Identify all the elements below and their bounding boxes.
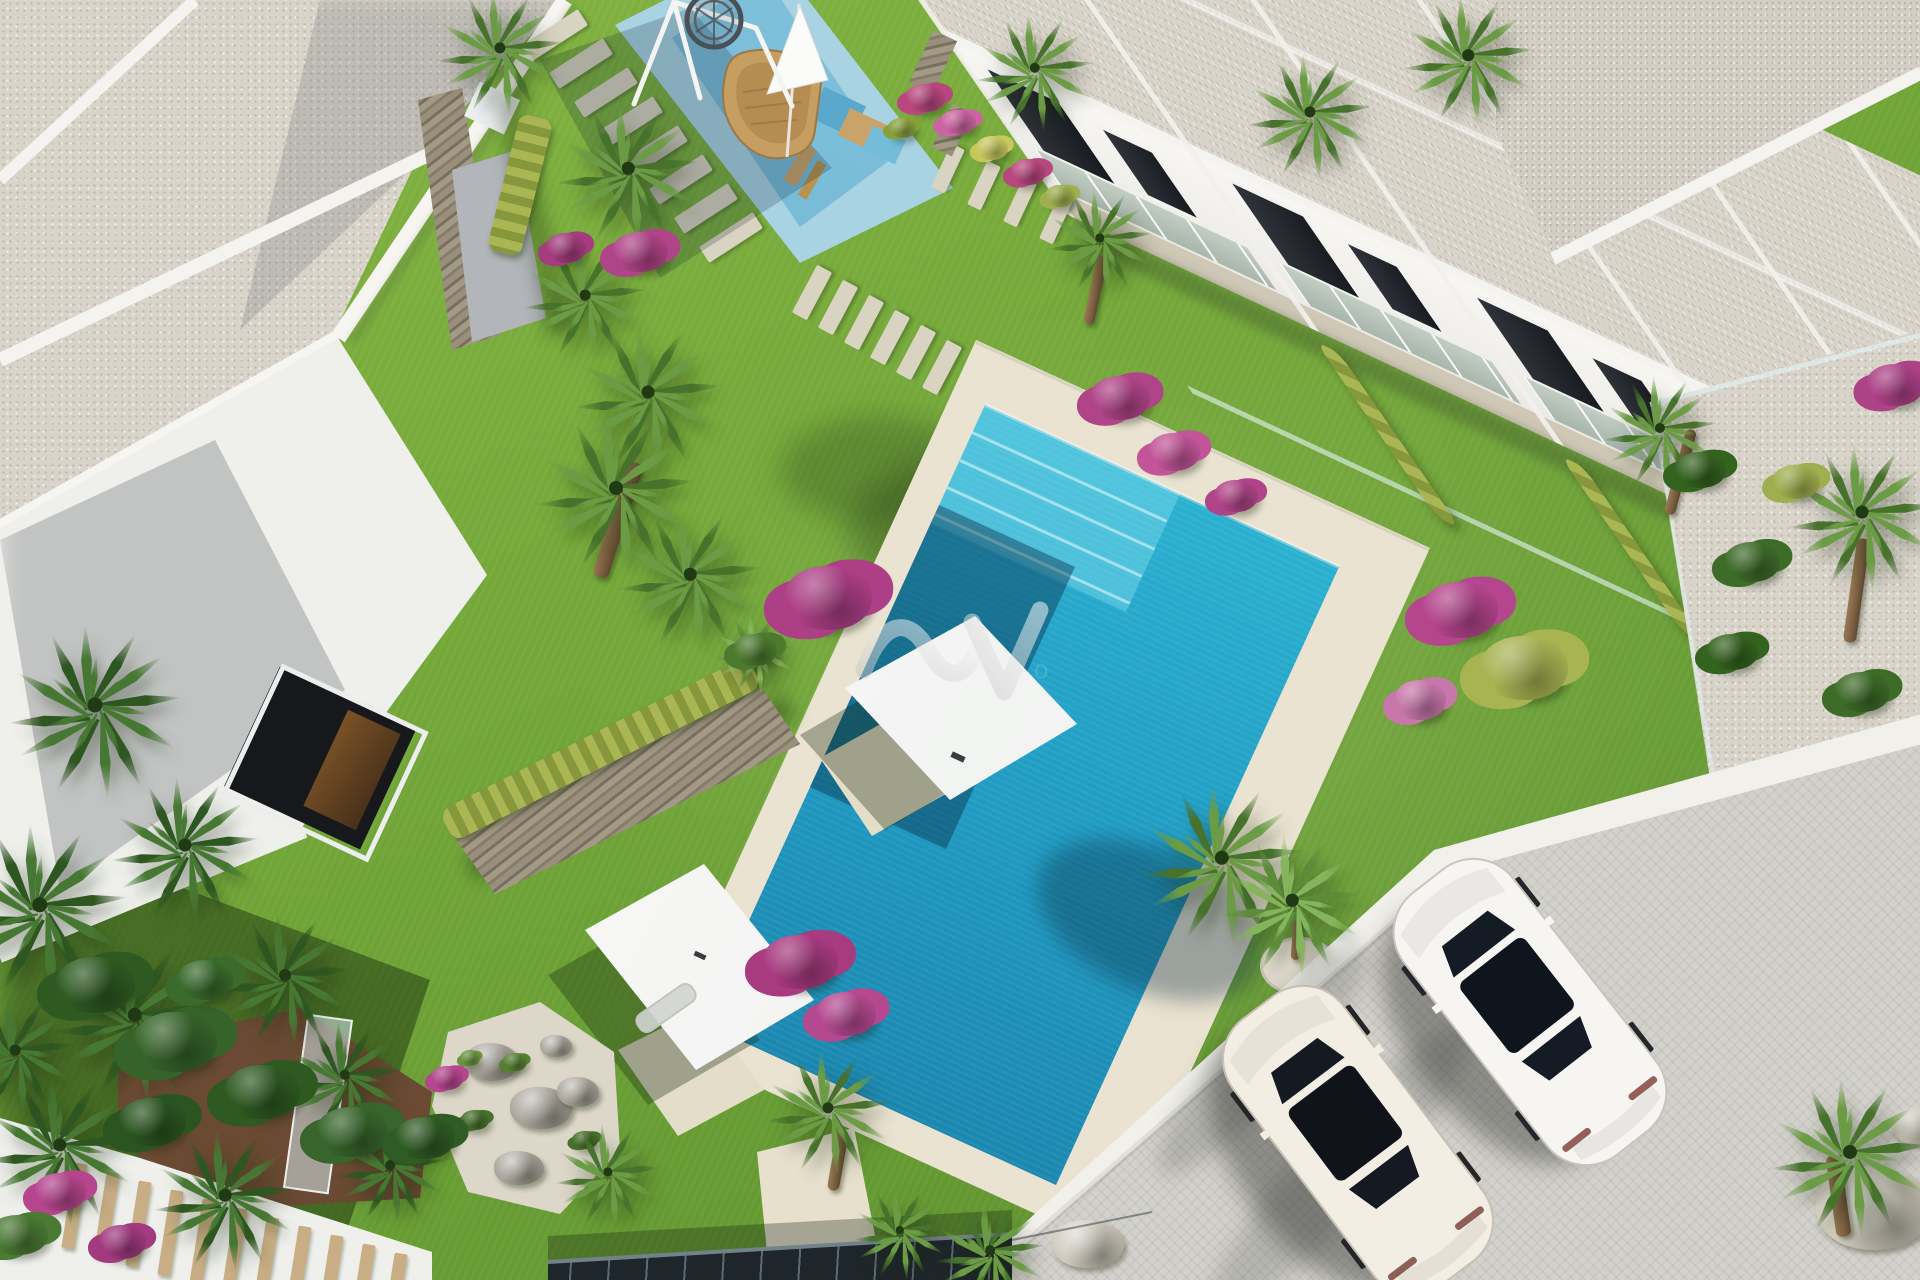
palm-frond [345, 1082, 358, 1141]
palm-frond [263, 981, 290, 1020]
palm-frond [1307, 71, 1363, 115]
palm-frond [1816, 516, 1861, 534]
palm-frond [18, 1117, 58, 1152]
palm-frond [610, 1169, 643, 1181]
palm-frond [311, 1024, 344, 1080]
palm-frond [1461, 16, 1472, 56]
palm-frond [1471, 53, 1532, 93]
palm-frond [40, 916, 60, 1003]
palm-frond [220, 944, 282, 987]
palm-tree-19 [854, 1184, 946, 1276]
stone-wall-piece-2 [932, 104, 972, 157]
palm-frond [356, 1169, 390, 1184]
palm-frond [933, 1254, 987, 1265]
palm-frond [1273, 57, 1308, 117]
bush-25 [98, 1225, 146, 1259]
palm-frond [795, 1116, 835, 1175]
palm-frond [1862, 521, 1879, 594]
palm-crown-center [219, 1189, 232, 1202]
palm-frond [588, 293, 645, 330]
parapet-band-2 [0, 149, 431, 367]
palm-frond [1653, 394, 1664, 429]
palm-crown-center [179, 839, 192, 852]
palm-frond [45, 631, 93, 713]
bush-17 [1045, 185, 1075, 207]
unit-2-window-small [1592, 358, 1686, 446]
pool-step-line-2 [959, 459, 1155, 551]
palm-frond [286, 978, 309, 1018]
palm-frond [769, 1115, 829, 1151]
palm-frond [618, 493, 665, 568]
palm-frond [1225, 855, 1275, 871]
stepping-path-to-pool-slab-1 [818, 279, 858, 335]
roof-divider-5 [1845, 140, 1920, 788]
bush-12 [905, 84, 945, 112]
palm-trunk-4 [1842, 537, 1869, 643]
bush-24 [34, 1173, 86, 1211]
palm-frond [608, 418, 660, 491]
palm-tree-13 [155, 1125, 295, 1265]
rock-bottom-right-2 [1892, 1107, 1920, 1145]
palm-frond [1470, 59, 1508, 121]
palm-frond [613, 437, 684, 492]
palm-frond [0, 829, 38, 913]
boulder-5 [540, 1035, 572, 1057]
palm-frond [158, 1202, 226, 1243]
palm-frond [1097, 214, 1126, 240]
palm-frond [553, 303, 591, 360]
palm-frond [138, 1012, 188, 1028]
bush-4 [546, 233, 586, 263]
palm-frond [539, 452, 612, 503]
palm-frond [900, 1236, 911, 1280]
palm-frond [1311, 115, 1333, 153]
palm-frond [63, 1132, 138, 1150]
palm-frond [793, 1085, 827, 1115]
palm-frond [42, 910, 93, 993]
bush-8 [1422, 582, 1498, 638]
palm-frond [60, 1155, 77, 1230]
palm-frond [1037, 65, 1074, 78]
palm-frond [1275, 89, 1309, 119]
palm-frond [135, 1025, 153, 1106]
palm-frond [44, 890, 131, 911]
palm-frond [551, 273, 584, 303]
palm-frond [789, 1112, 828, 1129]
palm-frond [183, 813, 222, 847]
palm-frond [987, 1226, 1017, 1253]
palm-frond [1101, 240, 1121, 272]
palm-tree-6 [715, 610, 795, 690]
palm-frond [586, 298, 608, 335]
palm-frond [282, 946, 318, 977]
palm-frond [630, 172, 672, 239]
palm-crown-center [1655, 423, 1665, 433]
palm-frond [347, 1079, 382, 1135]
palm-frond [998, 72, 1035, 88]
palm-frond [582, 268, 615, 297]
palm-frond [114, 811, 182, 858]
palm-frond [1660, 435, 1673, 491]
palm-frond [589, 141, 626, 175]
palm-trunk-1 [592, 460, 644, 579]
palm-frond [613, 453, 655, 490]
palm-frond [1171, 863, 1221, 883]
row-parapet [940, 27, 1920, 760]
palm-frond [1847, 1101, 1918, 1156]
palm-frond [108, 1022, 140, 1069]
palm-frond [620, 475, 699, 494]
palm-frond [188, 833, 261, 851]
palm-frond [1800, 1157, 1849, 1177]
pergola-slats-slab-10 [381, 1253, 407, 1280]
palm-tree-18 [556, 1120, 660, 1224]
palm-frond [0, 1055, 20, 1091]
palm-frond [223, 1164, 261, 1197]
palm-frond [901, 1232, 919, 1261]
palm-frond [598, 1121, 608, 1173]
palm-frond [821, 1070, 832, 1109]
palm-frond [186, 848, 211, 892]
palm-tree-26 [1604, 372, 1716, 484]
unit-1-window-main [1232, 184, 1359, 298]
palm-frond [561, 175, 629, 216]
watermark-partial-text: o [1034, 654, 1048, 685]
unit-0-window-small [1103, 130, 1197, 218]
bush-23 [395, 1117, 455, 1159]
boulder-2 [510, 1087, 572, 1129]
palm-frond [1601, 433, 1657, 445]
palm-frond [547, 299, 585, 315]
glass-fence-right-side [1650, 402, 1718, 793]
palm-frond [0, 872, 38, 913]
palm-frond [186, 1168, 223, 1202]
palm-frond [339, 1171, 391, 1202]
palm-frond [825, 1080, 859, 1110]
palm-frond [625, 122, 689, 171]
palm-frond [17, 1054, 53, 1112]
palm-frond [1004, 76, 1041, 131]
palm-frond [1244, 117, 1306, 130]
palm-frond [651, 547, 688, 581]
palm-trunk-6 [1290, 920, 1302, 961]
palm-frond [587, 299, 623, 357]
palm-frond [676, 505, 690, 575]
palm-tree-20 [1142, 778, 1302, 938]
palm-trunk-7 [827, 1128, 850, 1191]
stepping-path-flowerbeds-slab-3 [1039, 194, 1073, 244]
palm-frond [61, 1148, 87, 1193]
play-unit-blue-2 [862, 126, 906, 165]
palm-frond [222, 982, 286, 1020]
palm-frond [342, 1049, 374, 1077]
palm-frond [1855, 468, 1867, 513]
palm-frond [211, 1126, 225, 1196]
palm-frond [1824, 521, 1870, 589]
palm-frond [1628, 407, 1659, 435]
palm-crown-center [53, 1138, 66, 1151]
palm-frond [390, 1172, 402, 1226]
palm-frond [1033, 30, 1086, 71]
palm-frond [228, 1183, 299, 1200]
palm-frond [648, 401, 665, 474]
palm-frond [109, 851, 182, 866]
palm-frond [1294, 904, 1336, 971]
palm-frond [1206, 780, 1222, 860]
palm-frond [575, 1176, 608, 1191]
pergola-slats-slab-8 [317, 1235, 343, 1280]
palm-frond [578, 259, 589, 297]
palm-frond [88, 945, 133, 1023]
palm-frond [1471, 44, 1536, 60]
wall-base-band [0, 828, 307, 962]
palm-frond [978, 41, 1032, 79]
palm-frond [757, 649, 795, 675]
palm-frond [285, 983, 300, 1050]
bush-10 [1394, 680, 1446, 720]
rock-bottom-right [1816, 1166, 1920, 1250]
palm-frond [312, 1054, 344, 1083]
palm-frond [8, 1014, 19, 1052]
palm-frond [752, 631, 776, 652]
palm-frond [185, 854, 202, 927]
palm-frond [181, 1199, 225, 1217]
palm-frond [15, 714, 96, 763]
palm-frond [988, 1214, 1037, 1252]
palm-frond [610, 401, 656, 469]
palm-frond [0, 912, 36, 930]
palm-frond [502, 52, 539, 112]
palm-frond [666, 580, 694, 621]
palm-frond [1469, 58, 1492, 97]
palm-crown-center [87, 697, 102, 712]
palm-frond [572, 458, 614, 495]
palm-frond [144, 818, 182, 853]
bush-31 [1772, 465, 1820, 499]
palm-frond [1146, 867, 1224, 914]
palm-frond [1035, 75, 1048, 134]
palm-frond [991, 1252, 1011, 1280]
palm-frond [98, 702, 151, 719]
palm-frond [308, 1079, 345, 1095]
palm-frond [762, 1113, 824, 1126]
palm-frond [86, 629, 142, 707]
palm-frond [1407, 62, 1469, 99]
palm-frond [12, 1010, 67, 1052]
palm-frond [750, 614, 777, 652]
palm-crown-center [1215, 851, 1229, 865]
palm-frond [1850, 1162, 1868, 1241]
palm-frond [521, 300, 581, 313]
palm-frond [393, 1163, 444, 1197]
palm-frond [590, 494, 621, 539]
unit-3-balcony-glass [1767, 490, 1920, 632]
palm-frond [693, 562, 764, 579]
palm-frond [1285, 857, 1297, 901]
palm-frond [56, 978, 131, 1030]
palm-frond [91, 650, 168, 709]
palm-frond [742, 655, 761, 680]
palm-frond [1658, 391, 1709, 430]
palm-frond [734, 656, 760, 694]
palm-frond [1090, 187, 1100, 239]
palm-frond [898, 1200, 940, 1232]
palm-frond [1809, 1162, 1859, 1236]
palm-frond [36, 848, 114, 909]
unit-3-window-main [1722, 412, 1849, 526]
palm-frond [156, 1162, 222, 1208]
palm-frond [1050, 244, 1100, 274]
roof-divider-4 [1600, 26, 1920, 674]
palm-frond [1835, 1076, 1850, 1154]
palm-frond [17, 1047, 55, 1060]
palm-frond [1865, 500, 1920, 518]
palm-frond [1649, 373, 1660, 429]
palm-frond [1102, 235, 1135, 247]
palm-frond [116, 853, 186, 895]
tree-shadow-lawn-2 [780, 415, 980, 525]
palm-frond [585, 303, 599, 364]
palm-frond [628, 177, 644, 248]
palm-frond [48, 673, 93, 713]
palm-frond [1455, 0, 1467, 57]
palm-frond [621, 125, 633, 169]
palm-frond [497, 20, 531, 50]
palm-frond [343, 1037, 396, 1078]
palm-tree-3 [576, 320, 720, 464]
palm-frond [502, 45, 541, 59]
bush-33 [1834, 672, 1890, 712]
palm-frond [1310, 120, 1324, 183]
stepping-path-to-pool-slab-4 [896, 324, 936, 380]
palm-frond [1038, 58, 1097, 72]
stepping-path-playground-slab-4 [624, 125, 688, 176]
stepping-path-to-pool-slab-5 [922, 339, 962, 395]
fence-wire-extension [1012, 1211, 1152, 1241]
palm-frond [1852, 1157, 1899, 1232]
palm-frond [570, 419, 614, 495]
palm-frond [434, 53, 496, 66]
palm-frond [78, 623, 94, 707]
palm-frond [391, 1167, 411, 1200]
palm-frond [215, 980, 281, 994]
palm-frond [1251, 119, 1311, 155]
palm-crown-center [385, 1160, 395, 1170]
unit-0-balcony-glass [1033, 148, 1276, 290]
palm-frond [0, 1055, 12, 1068]
bush-26 [0, 1215, 48, 1255]
palm-frond [50, 1022, 131, 1039]
bush-2 [816, 992, 876, 1036]
wall-shadow-strip [492, 92, 572, 333]
palm-frond [577, 358, 645, 405]
palm-frond [0, 1028, 13, 1058]
palm-frond [278, 915, 322, 977]
pergola-slats-slab-0 [61, 1163, 87, 1250]
palm-frond [1069, 192, 1099, 243]
playground-swing [596, 0, 796, 126]
palm-frond [1607, 434, 1661, 467]
palm-crown-center [494, 42, 505, 53]
palm-frond [1838, 518, 1867, 560]
palm-frond [201, 1201, 229, 1242]
palm-frond [616, 498, 634, 577]
palm-frond [0, 1058, 22, 1115]
palm-frond [1470, 52, 1510, 66]
palm-frond [1289, 854, 1353, 903]
palm-frond [1806, 1122, 1848, 1159]
bush-16 [888, 118, 916, 138]
palm-frond [348, 1065, 407, 1079]
palm-frond [1214, 786, 1267, 861]
palm-frond [1461, 0, 1504, 57]
palm-frond [972, 1255, 995, 1280]
palm-frond [465, 25, 499, 55]
palm-frond [1271, 116, 1310, 133]
palm-frond [479, 53, 505, 90]
palm-frond [1036, 71, 1057, 107]
palm-frond [631, 165, 675, 179]
facade-window-dark [224, 666, 416, 849]
palm-crown-center [279, 969, 291, 981]
palm-frond [45, 902, 127, 956]
palm-frond [346, 1078, 367, 1114]
palm-frond [1223, 867, 1289, 913]
palm-frond [748, 627, 758, 652]
bush-13 [940, 110, 976, 134]
palm-frond [1249, 83, 1307, 123]
palm-frond [142, 782, 183, 852]
palm-tree-0 [438, 0, 562, 110]
palm-frond [632, 166, 699, 210]
palm-tree-29 [936, 1196, 1044, 1280]
palm-frond [1465, 26, 1500, 57]
palm-frond [3, 991, 15, 1051]
roof-divider-2 [1111, 0, 1564, 446]
palm-frond [624, 398, 653, 440]
palm-frond [831, 1097, 894, 1112]
palm-tree-17 [766, 1046, 890, 1170]
palm-frond [956, 1254, 990, 1269]
palm-frond [1468, 63, 1483, 128]
palm-tree-11 [219, 909, 351, 1041]
row-facade [949, 40, 1920, 906]
stepping-path-playground-slab-0 [524, 9, 588, 60]
palm-frond [1290, 869, 1328, 902]
bush-18 [55, 957, 135, 1013]
palm-frond [1863, 515, 1888, 559]
palm-frond [1432, 31, 1467, 62]
palm-frond [1804, 1083, 1848, 1159]
unit-1-balcony-glass [1278, 262, 1521, 404]
watermark-logo [848, 566, 1072, 716]
palm-crown-center [1030, 63, 1040, 73]
palm-frond [1663, 426, 1716, 461]
palm-frond [601, 412, 616, 490]
palm-frond [554, 174, 624, 189]
palm-crown-center [128, 1008, 142, 1022]
palm-frond [979, 1197, 990, 1251]
palm-frond [1843, 1104, 1856, 1153]
palm-frond [497, 7, 553, 51]
palm-frond [383, 1132, 394, 1166]
palm-frond [1767, 1158, 1846, 1175]
palm-frond [392, 1162, 426, 1175]
car-shadow-2 [1337, 867, 1651, 1204]
palm-frond [21, 1155, 68, 1225]
palm-frond [553, 1176, 605, 1187]
palm-frond [225, 1204, 241, 1275]
